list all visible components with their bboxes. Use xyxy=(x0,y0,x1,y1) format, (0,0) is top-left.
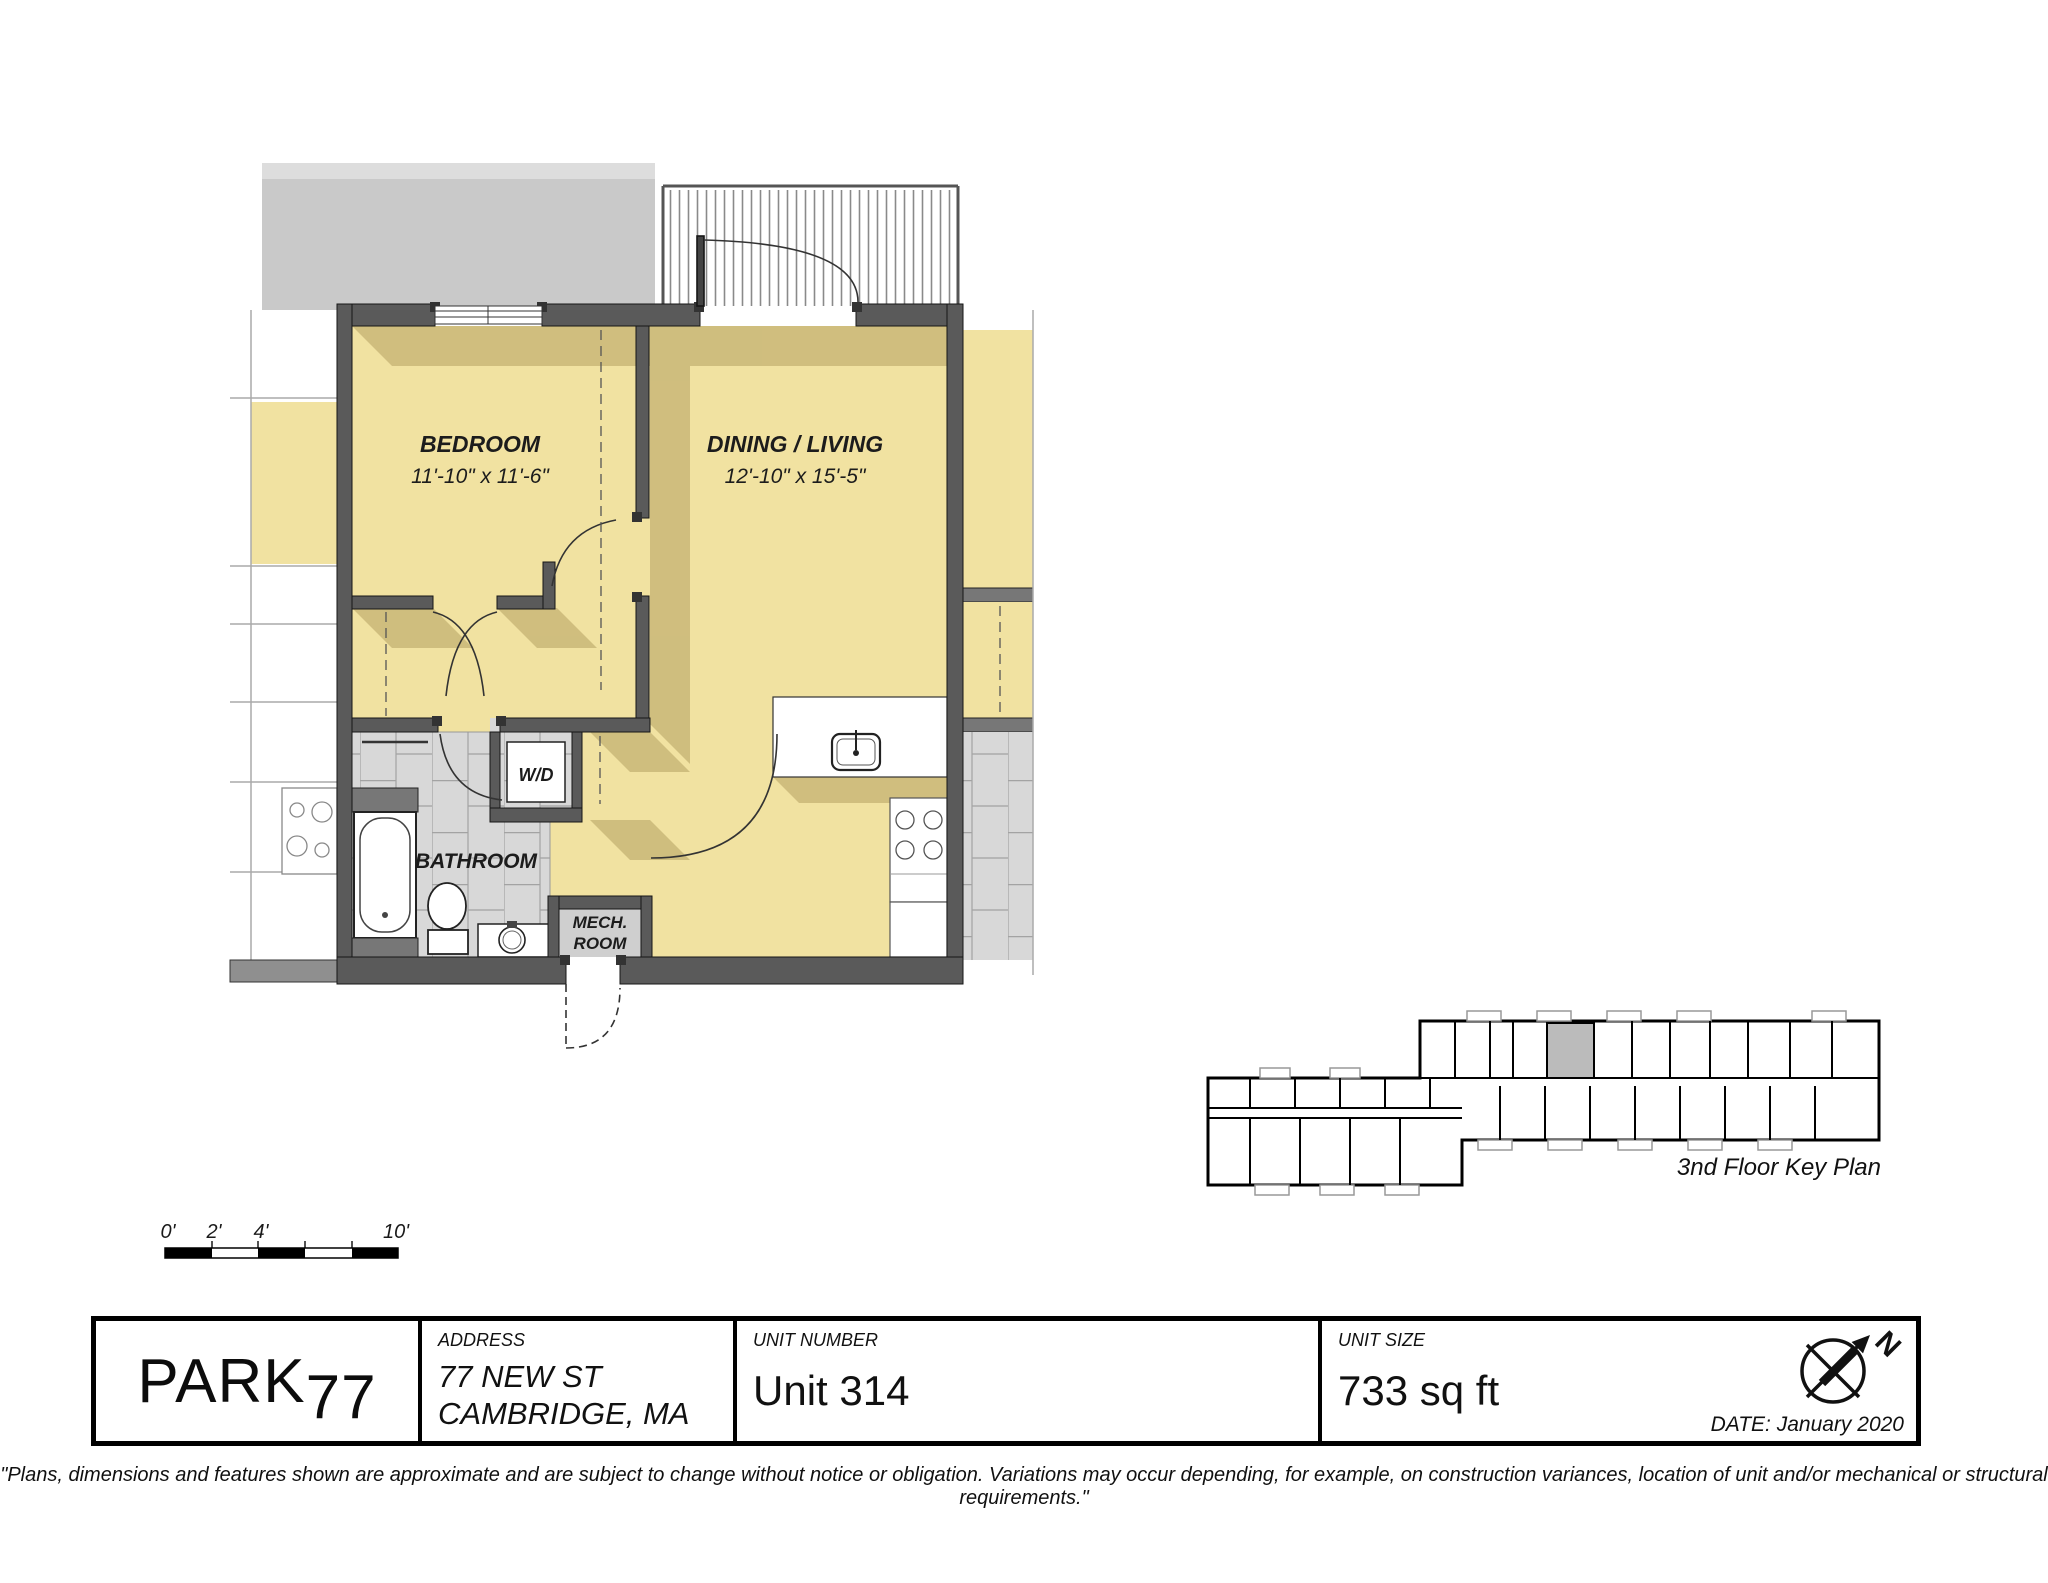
living-dims: 12'-10" x 15'-5" xyxy=(725,465,867,488)
scale-bar: 0' 2' 4' 10' xyxy=(161,1221,411,1258)
wd-label: W/D xyxy=(519,765,554,785)
key-plan: 3nd Floor Key Plan xyxy=(1208,1011,1881,1195)
right-neighbor-unit xyxy=(963,310,1035,975)
bathroom-sink-icon xyxy=(478,921,550,957)
bedroom-dims: 11'-10" x 11'-6" xyxy=(411,465,550,488)
key-plan-caption: 3nd Floor Key Plan xyxy=(1677,1154,1881,1181)
bathroom-label: BATHROOM xyxy=(415,850,538,873)
mech-label-line1: MECH. xyxy=(573,913,628,932)
address-line2: CAMBRIDGE, MA xyxy=(438,1396,733,1433)
key-plan-unit-highlight xyxy=(1547,1023,1594,1078)
toilet-icon xyxy=(428,883,468,954)
address-line1: 77 NEW ST xyxy=(438,1359,733,1396)
kitchen-sink-icon xyxy=(832,730,880,770)
address-cell: ADDRESS 77 NEW ST CAMBRIDGE, MA xyxy=(418,1321,733,1441)
logo-cell: PARK77 xyxy=(96,1321,418,1441)
adjacent-building-mass xyxy=(262,163,655,310)
north-arrow-icon: N xyxy=(1778,1323,1902,1427)
entry-door-swing xyxy=(566,984,620,1048)
bathtub-icon xyxy=(352,788,418,957)
bedroom-window xyxy=(435,306,542,324)
title-block: PARK77 ADDRESS 77 NEW ST CAMBRIDGE, MA U… xyxy=(91,1316,1921,1446)
balcony-door-leaf xyxy=(697,236,704,306)
scale-label-0: 0' xyxy=(161,1221,177,1243)
kitchen-base-cabinet xyxy=(890,902,947,957)
stove-icon xyxy=(890,798,947,902)
unit-number-value: Unit 314 xyxy=(753,1367,1318,1415)
balcony-railing xyxy=(668,190,954,306)
logo-park-text: PARK xyxy=(137,1347,305,1416)
scale-label-2: 2' xyxy=(206,1221,223,1243)
floor-plan-sheet: BEDROOM 11'-10" x 11'-6" DINING / LIVING… xyxy=(0,0,2048,1583)
date-text: DATE: January 2020 xyxy=(1711,1413,1904,1437)
scale-label-10: 10' xyxy=(383,1221,410,1243)
address-label: ADDRESS xyxy=(438,1330,733,1351)
park77-logo: PARK77 xyxy=(137,1346,376,1417)
address-value: 77 NEW ST CAMBRIDGE, MA xyxy=(438,1359,733,1432)
scale-label-4: 4' xyxy=(254,1221,270,1243)
north-letter: N xyxy=(1868,1325,1902,1364)
logo-77-text: 77 xyxy=(306,1362,377,1433)
neighbor-stove-icon xyxy=(282,788,337,874)
unit-number-label: UNIT NUMBER xyxy=(753,1330,1318,1351)
bedroom-label: BEDROOM xyxy=(420,431,541,457)
balcony xyxy=(663,186,958,310)
left-neighbor-unit xyxy=(230,310,337,982)
disclaimer-text: "Plans, dimensions and features shown ar… xyxy=(0,1464,2048,1510)
mech-label-line2: ROOM xyxy=(574,934,628,953)
unit-number-cell: UNIT NUMBER Unit 314 xyxy=(733,1321,1318,1441)
unit-size-cell: UNIT SIZE 733 sq ft N DATE: January 2020 xyxy=(1318,1321,1916,1441)
living-label: DINING / LIVING xyxy=(707,431,883,457)
